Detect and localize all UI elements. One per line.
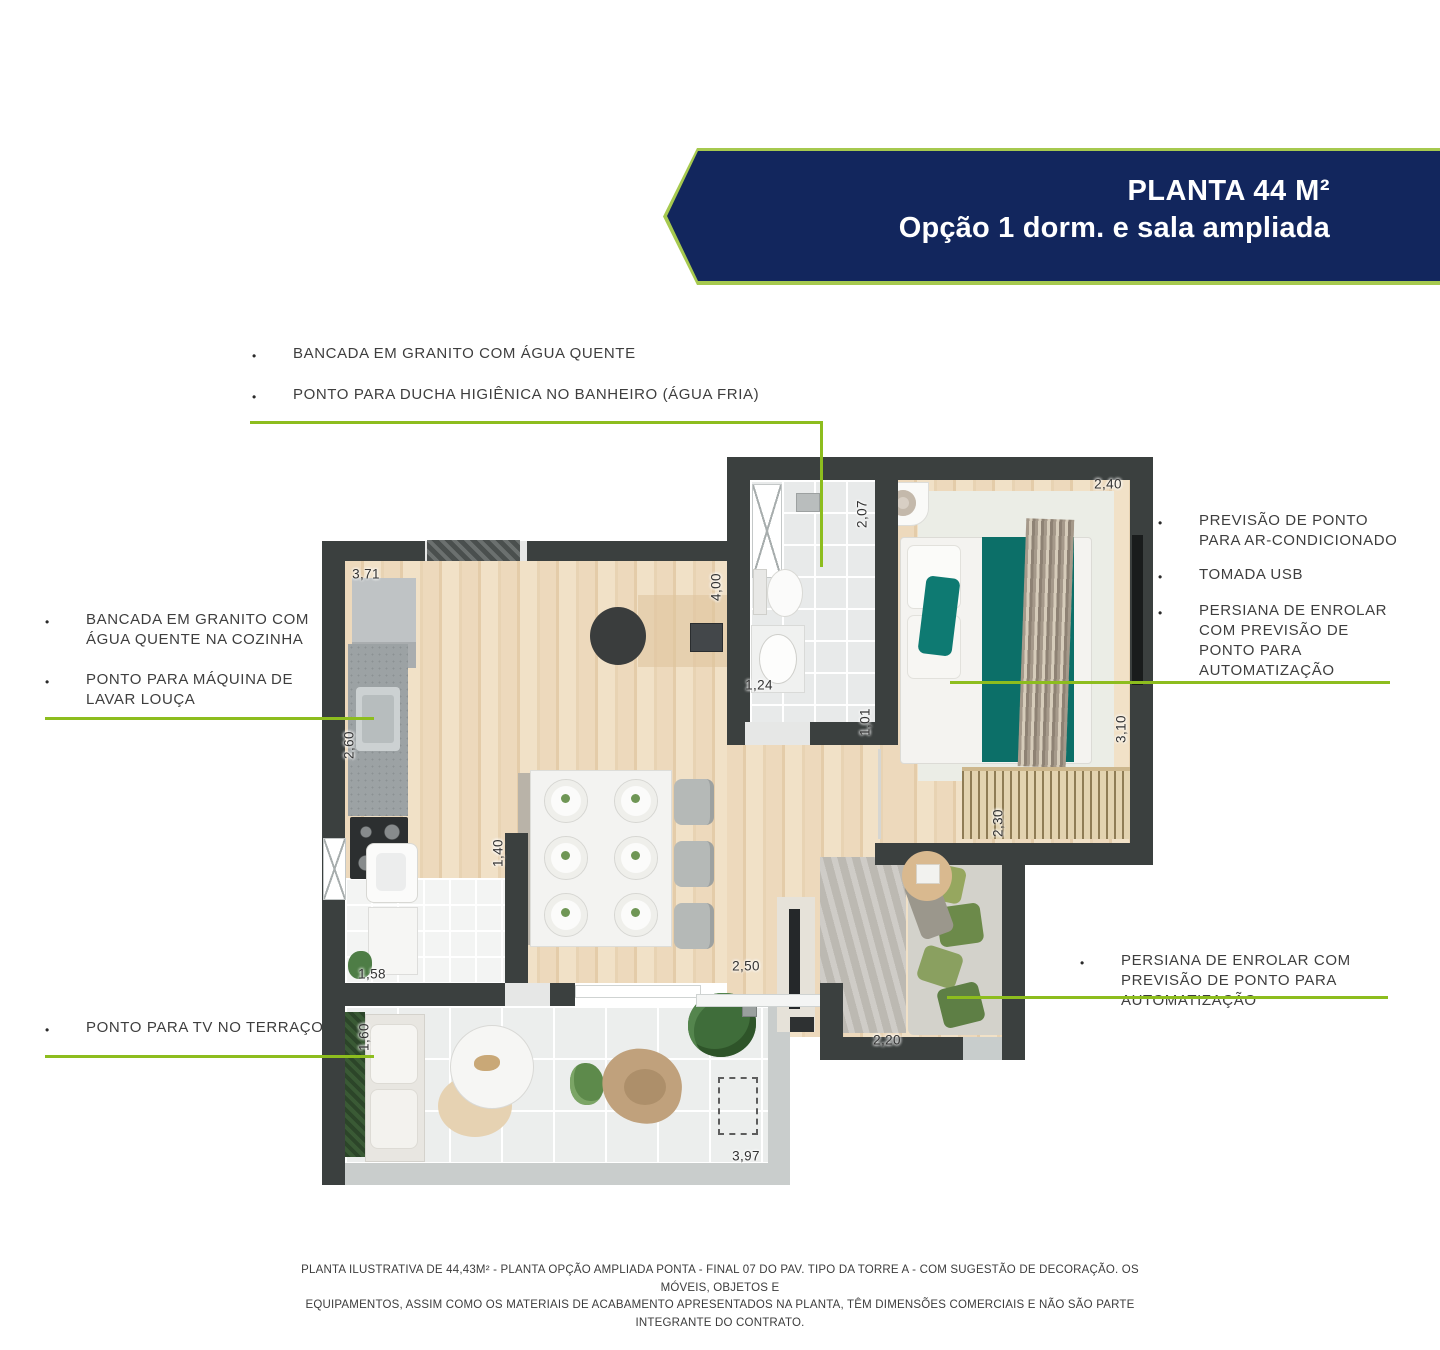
callout-text: TOMADA USB <box>1199 565 1303 587</box>
dining-chair <box>674 779 714 825</box>
table-decor <box>474 1055 500 1071</box>
title-banner: PLANTA 44 M² Opção 1 dorm. e sala amplia… <box>663 148 1440 285</box>
callout-group-bottom-left: • PONTO PARA TV NO TERRAÇO <box>45 1018 345 1059</box>
sliding-door-panel <box>696 994 822 1007</box>
page: PLANTA 44 M² Opção 1 dorm. e sala amplia… <box>0 0 1440 1350</box>
callout-text: PONTO PARA TV NO TERRAÇO <box>86 1018 324 1040</box>
wall-bathroom-bedroom <box>875 480 898 722</box>
wall-terrace-top <box>345 983 505 1006</box>
dim-label: 1,01 <box>858 708 873 736</box>
side-table-tray <box>916 864 940 884</box>
bullet-icon: • <box>45 670 86 710</box>
bathroom-door-opening <box>745 722 810 745</box>
wall-bathroom-bottom <box>727 722 745 745</box>
callout-item: • PONTO PARA TV NO TERRAÇO <box>45 1018 345 1040</box>
dim-label: 4,00 <box>709 573 724 601</box>
callout-text: PONTO PARA MÁQUINA DE LAVAR LOUÇA <box>86 670 313 710</box>
bullet-icon: • <box>252 385 293 407</box>
dim-label: 3,71 <box>352 567 380 582</box>
callout-item: • PONTO PARA DUCHA HIGIÊNICA NO BANHEIRO… <box>252 385 832 407</box>
leader-line-bedroom-blind <box>950 681 1390 684</box>
place-setting <box>614 836 658 880</box>
beanbag-inner <box>624 1069 666 1105</box>
callout-text: PERSIANA DE ENROLAR COM PREVISÃO DE PONT… <box>1199 601 1408 681</box>
desk-chair <box>590 607 646 665</box>
wall-nook-right <box>1002 843 1025 1060</box>
dim-label: 1,24 <box>745 678 773 693</box>
laundry-window-glass <box>323 838 346 900</box>
bullet-icon: • <box>1158 565 1199 587</box>
disclaimer-line: EQUIPAMENTOS, ASSIM COMO OS MATERIAIS DE… <box>280 1297 1160 1332</box>
place-setting <box>614 893 658 937</box>
wall-top <box>727 457 1153 480</box>
laundry-tank-basin <box>376 853 406 891</box>
terrace-slab-edge-right <box>768 1006 790 1185</box>
leader-line-kitchen <box>45 717 374 720</box>
place-setting <box>614 779 658 823</box>
wall-living-top <box>527 541 750 561</box>
dim-label: 2,40 <box>1094 477 1122 492</box>
callout-text: PREVISÃO DE PONTO PARA AR-CONDICIONADO <box>1199 511 1408 551</box>
leader-line-shower <box>250 421 823 424</box>
dashed-reserved-area <box>718 1077 758 1135</box>
bullet-icon: • <box>1158 601 1199 681</box>
toilet <box>767 569 803 617</box>
entry-door-leaf <box>427 540 520 561</box>
bedroom-door-leaf <box>878 749 881 839</box>
callout-group-left: • BANCADA EM GRANITO COM ÁGUA QUENTE NA … <box>45 610 313 729</box>
bench-cushion <box>370 1089 418 1149</box>
dim-label: 1,60 <box>357 1023 372 1051</box>
disclaimer: PLANTA ILUSTRATIVA DE 44,43M² - PLANTA O… <box>280 1262 1160 1332</box>
callout-item: • PONTO PARA MÁQUINA DE LAVAR LOUÇA <box>45 670 313 710</box>
sliding-door-panel <box>575 985 701 998</box>
leader-line-shower-drop <box>820 421 823 567</box>
plan-subtitle: Opção 1 dorm. e sala ampliada <box>899 209 1330 247</box>
leader-line-living-blind <box>947 996 1388 999</box>
callout-item: • TOMADA USB <box>1158 565 1408 587</box>
dim-label: 1,40 <box>491 839 506 867</box>
terrace-door-opening <box>505 983 550 1006</box>
wall-bathroom-bottom <box>810 722 898 745</box>
laundry-cabinet <box>368 907 418 975</box>
place-setting <box>544 836 588 880</box>
toilet-tank <box>753 569 767 615</box>
bed-striped-throw <box>1018 518 1075 768</box>
bullet-icon: • <box>45 610 86 650</box>
bullet-icon: • <box>252 344 293 366</box>
callout-group-right: • PREVISÃO DE PONTO PARA AR-CONDICIONADO… <box>1158 511 1408 700</box>
floor-plan: 3,71 2,60 1,58 1,40 4,00 2,07 1,24 1,01 … <box>322 457 1153 1185</box>
shower-box <box>752 484 782 578</box>
dim-label: 3,97 <box>732 1149 760 1164</box>
laptop <box>690 623 723 652</box>
dim-label: 2,50 <box>732 959 760 974</box>
dim-label: 3,10 <box>1114 715 1129 743</box>
callout-item: • BANCADA EM GRANITO COM ÁGUA QUENTE <box>252 344 832 366</box>
wall-terrace-top <box>550 983 575 1006</box>
dim-label: 2,30 <box>991 809 1006 837</box>
dining-chair <box>674 841 714 887</box>
callout-text: BANCADA EM GRANITO COM ÁGUA QUENTE <box>293 344 636 366</box>
disclaimer-line: PLANTA ILUSTRATIVA DE 44,43M² - PLANTA O… <box>280 1262 1160 1297</box>
callout-text: PERSIANA DE ENROLAR COM PREVISÃO DE PONT… <box>1121 951 1425 1011</box>
place-setting <box>544 779 588 823</box>
callout-item: • BANCADA EM GRANITO COM ÁGUA QUENTE NA … <box>45 610 313 650</box>
bullet-icon: • <box>1158 511 1199 551</box>
terrace-plant-small <box>570 1063 604 1105</box>
callout-item: • PERSIANA DE ENROLAR COM PREVISÃO DE PO… <box>1158 601 1408 681</box>
plan-title: PLANTA 44 M² <box>899 173 1330 209</box>
terrace-slab-edge-bottom <box>322 1163 790 1185</box>
callout-text: PONTO PARA DUCHA HIGIÊNICA NO BANHEIRO (… <box>293 385 759 407</box>
wall-bathroom-left <box>727 480 750 745</box>
wall-laundry-stub <box>505 833 528 983</box>
leader-line-terrace-tv <box>45 1055 374 1058</box>
bullet-icon: • <box>45 1018 86 1040</box>
callout-group-top: • BANCADA EM GRANITO COM ÁGUA QUENTE • P… <box>252 344 832 426</box>
dim-label: 2,20 <box>873 1033 901 1048</box>
dining-chair <box>674 903 714 949</box>
bench-cushion <box>370 1024 418 1084</box>
bathroom-shelf <box>796 493 820 512</box>
tv-stand <box>790 1017 814 1032</box>
dim-label: 1,58 <box>358 967 386 982</box>
callout-item: • PREVISÃO DE PONTO PARA AR-CONDICIONADO <box>1158 511 1408 551</box>
wall-living-top <box>322 541 425 561</box>
place-setting <box>544 893 588 937</box>
bedroom-window <box>1132 535 1143 685</box>
callout-text: BANCADA EM GRANITO COM ÁGUA QUENTE NA CO… <box>86 610 313 650</box>
bathroom-sink <box>759 634 797 684</box>
dim-label: 2,60 <box>342 731 357 759</box>
dim-label: 2,07 <box>855 500 870 528</box>
bedroom-dresser <box>962 767 1130 839</box>
